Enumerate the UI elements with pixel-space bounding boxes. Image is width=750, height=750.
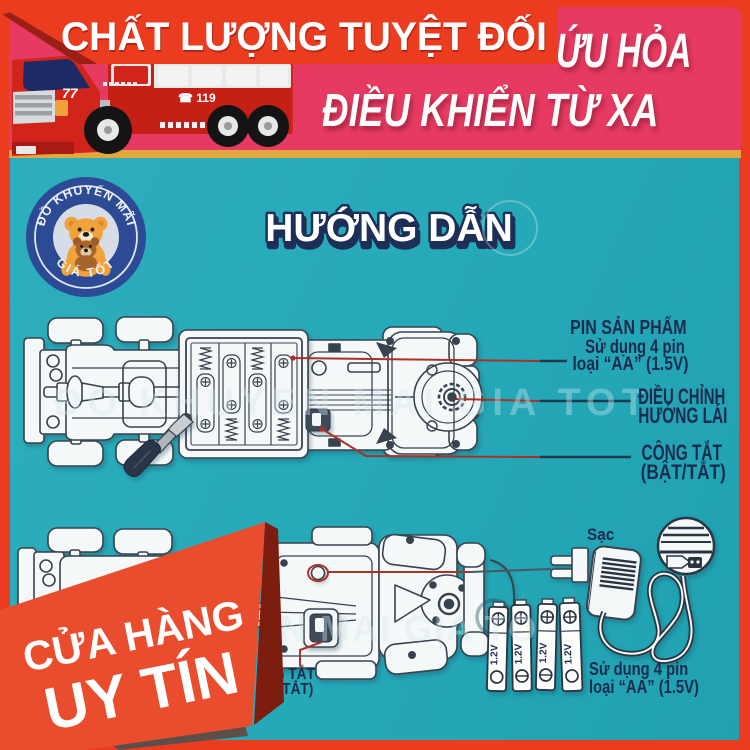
svg-text:1.2V: 1.2V — [538, 642, 550, 663]
svg-text:1.2V: 1.2V — [563, 643, 575, 664]
